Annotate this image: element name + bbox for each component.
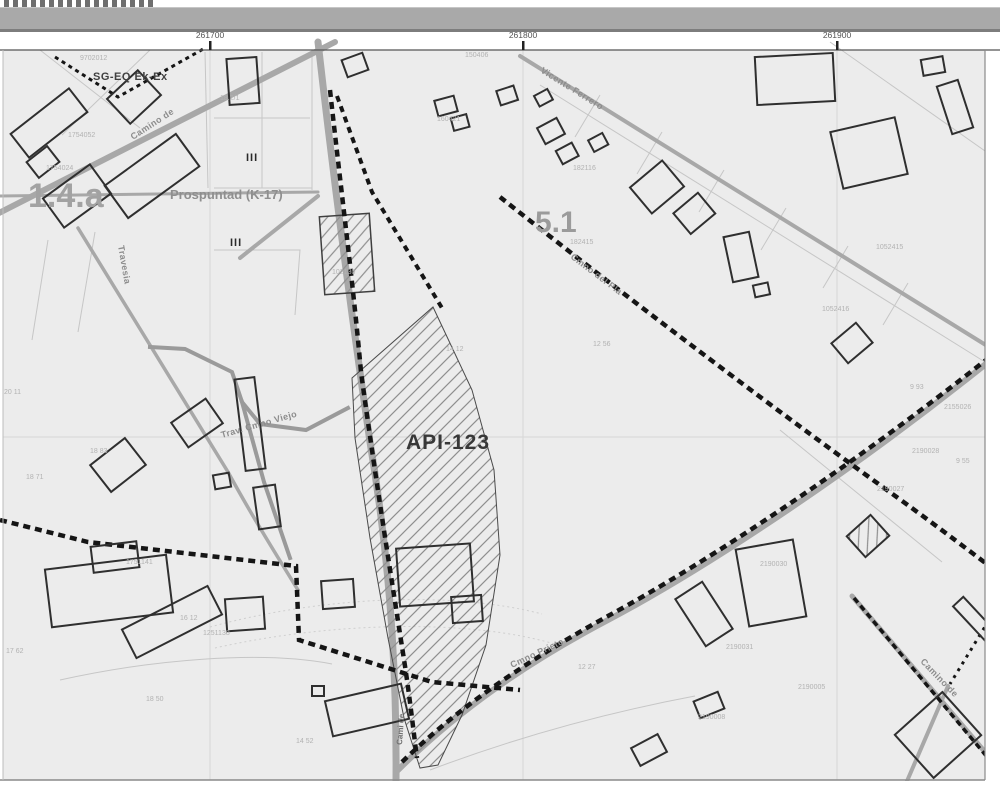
parcel-number: 17 62 [6, 648, 24, 655]
parcel-number: 2190030 [760, 561, 787, 568]
map-background [3, 50, 985, 780]
parcel-number: 14 12 [446, 346, 464, 353]
coordinate-ruler: 261700 261800 261900 [196, 30, 852, 50]
parcel-number: 1251138 [203, 630, 230, 637]
parcel-number: 20 11 [4, 389, 21, 396]
parcel-number: 2190031 [726, 644, 753, 651]
parcel-number: 14 52 [296, 738, 314, 745]
parcel-number: 2155026 [944, 404, 971, 411]
parcel-number: 1052416 [822, 306, 849, 313]
zone-label-1-4-a: 1.4.a [28, 177, 105, 215]
parcel-number: 182116 [573, 165, 596, 172]
parcel-number: 150406 [465, 52, 488, 59]
zone-label-5-1: 5.1 [535, 206, 577, 239]
parcel-number: 2190008 [698, 714, 725, 721]
parcel-number: 16 12 [180, 615, 198, 622]
zone-label-api-123: API-123 [406, 431, 490, 454]
parcel-number: 18 71 [26, 474, 44, 481]
parcel-number: 18 50 [146, 696, 164, 703]
titlebar-text-fragment [4, 0, 154, 7]
parcel-number: 102130 [332, 269, 355, 276]
parcel-number: 18 83 [90, 448, 108, 455]
application-window: 261700 261800 261900 SG-EQ Ek-Ex 1.4.a P… [0, 0, 1000, 800]
parcel-number: 2190005 [798, 684, 825, 691]
grid-tick [209, 41, 212, 50]
bottom-margin [0, 781, 1000, 800]
roman-numeral-label: III [246, 152, 258, 164]
window-titlebar[interactable] [0, 7, 1000, 32]
parcel-number: 1754024 [46, 165, 73, 172]
parcel-number: 160421 [437, 116, 460, 123]
parcel-number: 2190028 [912, 448, 939, 455]
parcel-number: 9702012 [80, 55, 107, 62]
map-canvas[interactable]: 261700 261800 261900 SG-EQ Ek-Ex 1.4.a P… [0, 0, 1000, 800]
parcel-number: 12 27 [578, 664, 596, 671]
parcel-number: 1052415 [876, 244, 903, 251]
right-margin [985, 50, 1000, 790]
parcel-number: 1754052 [68, 132, 95, 139]
parcel-number: 2190027 [877, 486, 904, 493]
parcel-number: 12 56 [593, 341, 611, 348]
parcel-number: 9 93 [910, 384, 924, 391]
zone-label-prospuntad: Prospuntad (K-17) [170, 187, 283, 202]
parcel-number: 182415 [570, 239, 593, 246]
parcel-number: 18.2/1 [220, 95, 240, 102]
roman-numeral-label: III [230, 237, 242, 249]
parcel-number: 1751141 [126, 559, 153, 566]
grid-tick [522, 41, 525, 50]
zone-label-sg-eq: SG-EQ Ek-Ex [93, 71, 168, 83]
parcel-number: 9 55 [956, 458, 970, 465]
grid-tick [836, 41, 839, 50]
